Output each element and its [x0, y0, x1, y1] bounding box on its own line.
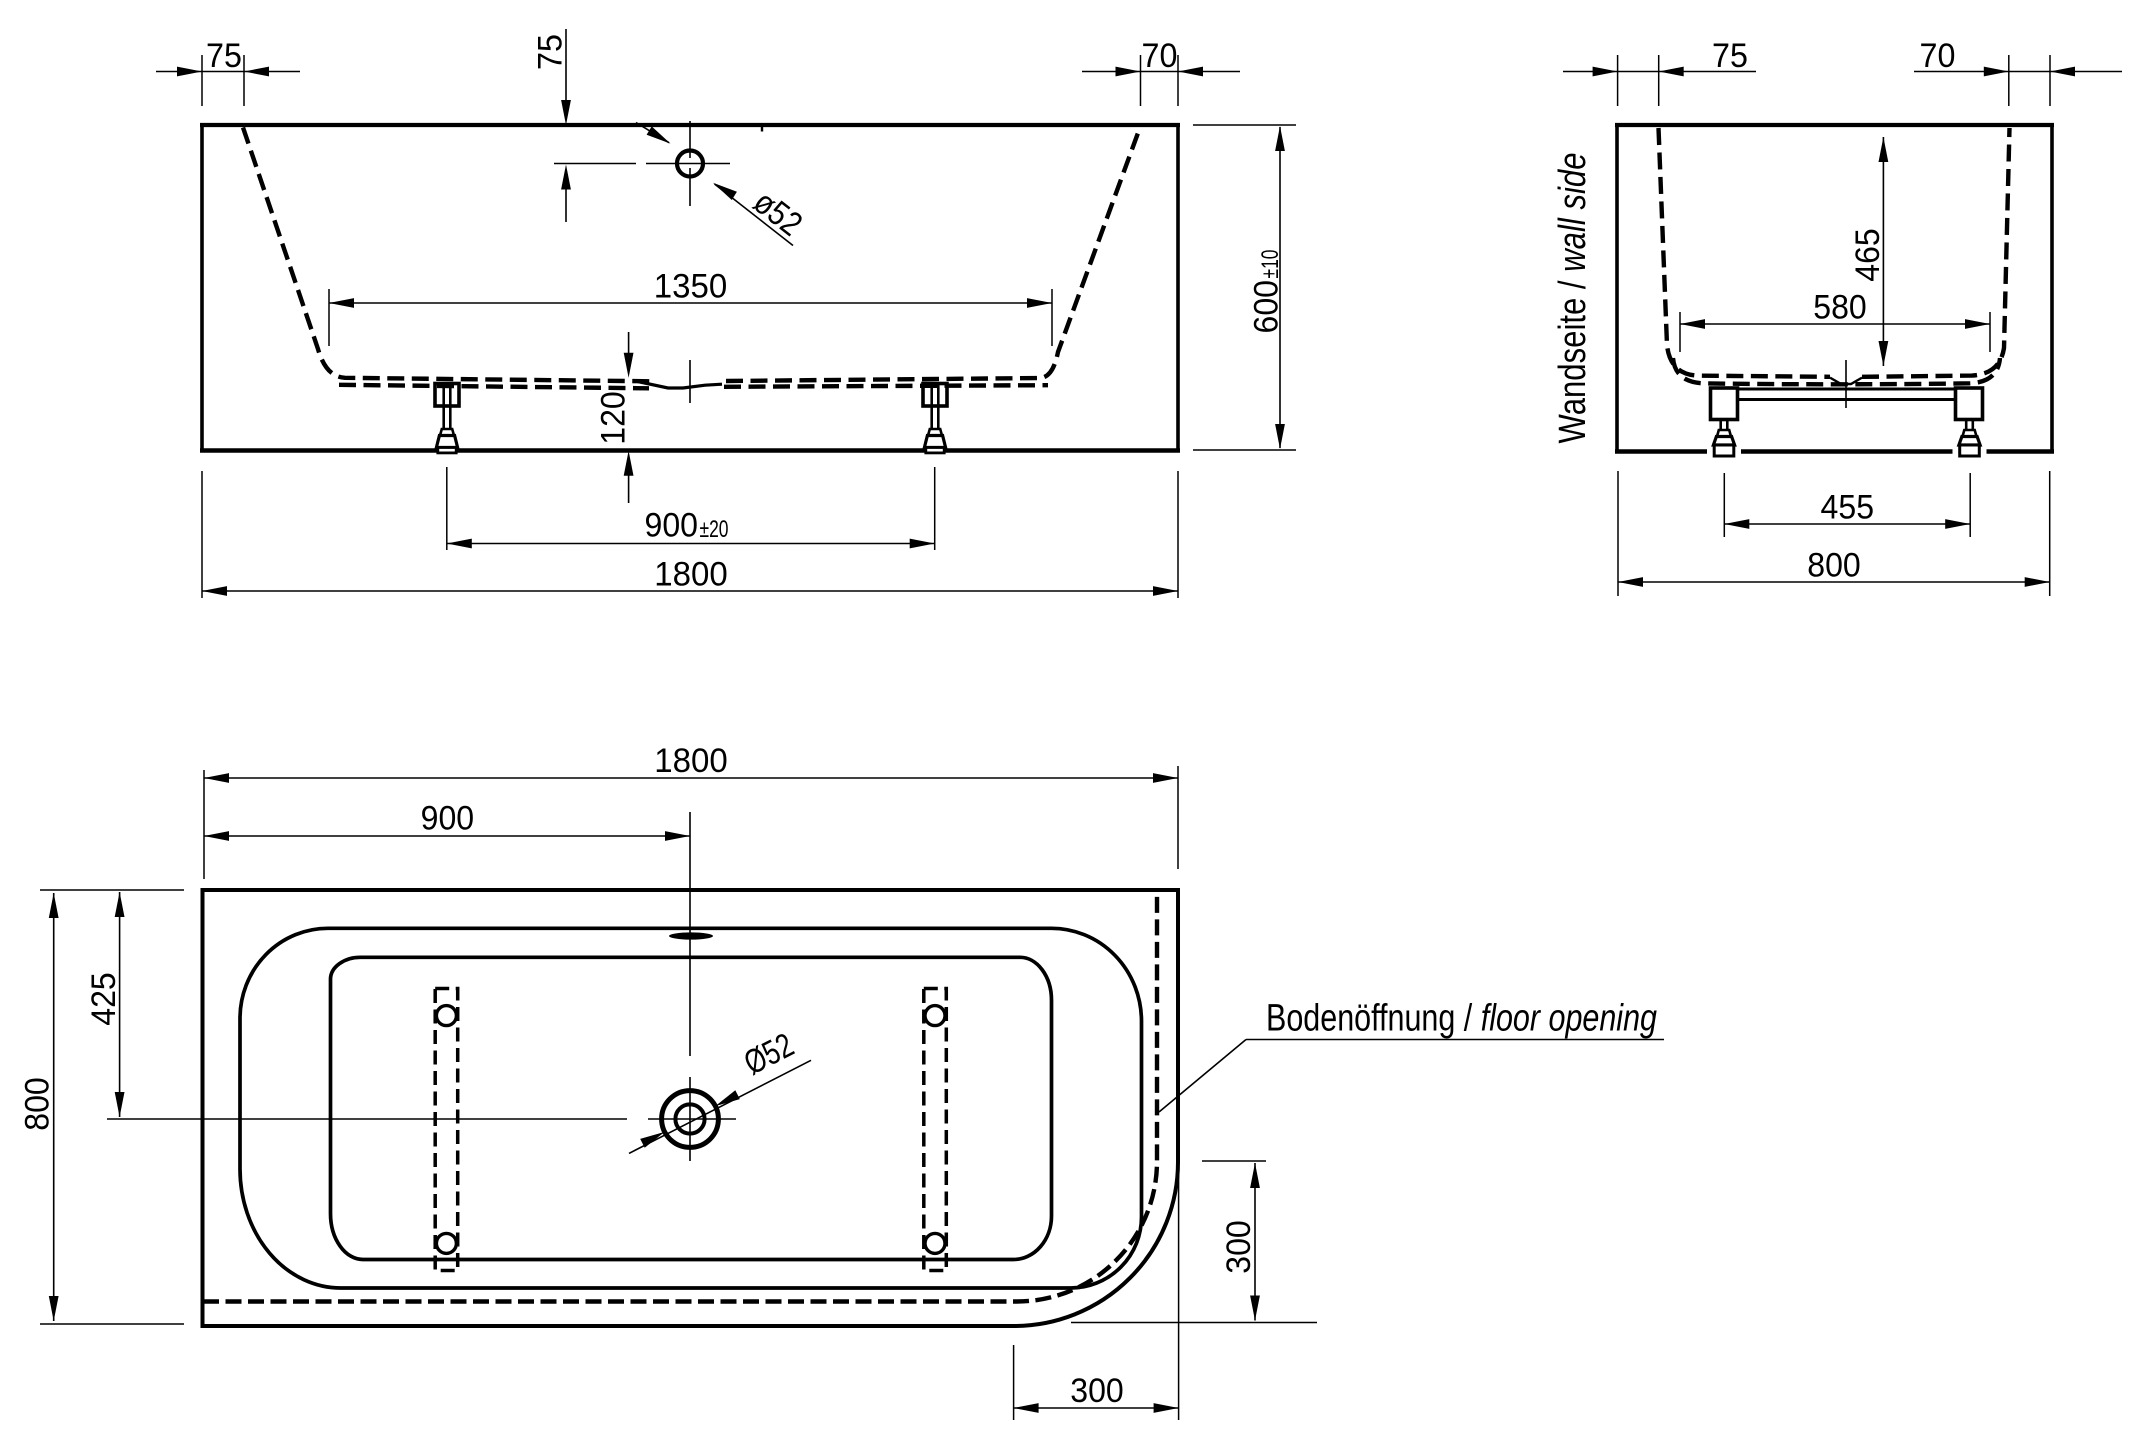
svg-text:465: 465 — [1849, 228, 1887, 282]
svg-text:Wandseite / wall side: Wandseite / wall side — [1552, 153, 1594, 444]
svg-text:1800: 1800 — [654, 742, 728, 780]
svg-text:±10: ±10 — [1257, 250, 1284, 279]
svg-text:Bodenöffnung / floor opening: Bodenöffnung / floor opening — [1266, 998, 1657, 1040]
svg-text:900: 900 — [421, 800, 475, 838]
svg-text:800: 800 — [1807, 547, 1861, 585]
svg-text:600: 600 — [1248, 280, 1286, 334]
svg-text:75: 75 — [532, 34, 570, 70]
svg-text:900: 900 — [645, 507, 699, 545]
svg-text:75: 75 — [206, 37, 242, 75]
svg-text:70: 70 — [1142, 37, 1178, 75]
svg-text:425: 425 — [85, 972, 123, 1026]
svg-text:800: 800 — [19, 1077, 57, 1131]
svg-text:120: 120 — [595, 391, 633, 445]
svg-text:455: 455 — [1821, 489, 1875, 527]
svg-text:300: 300 — [1070, 1372, 1124, 1410]
svg-text:75: 75 — [1712, 37, 1748, 75]
svg-text:300: 300 — [1220, 1220, 1258, 1274]
svg-text:70: 70 — [1920, 37, 1956, 75]
svg-text:1350: 1350 — [654, 268, 728, 306]
svg-text:±20: ±20 — [700, 516, 729, 543]
svg-text:580: 580 — [1813, 289, 1867, 327]
svg-text:1800: 1800 — [654, 556, 728, 594]
